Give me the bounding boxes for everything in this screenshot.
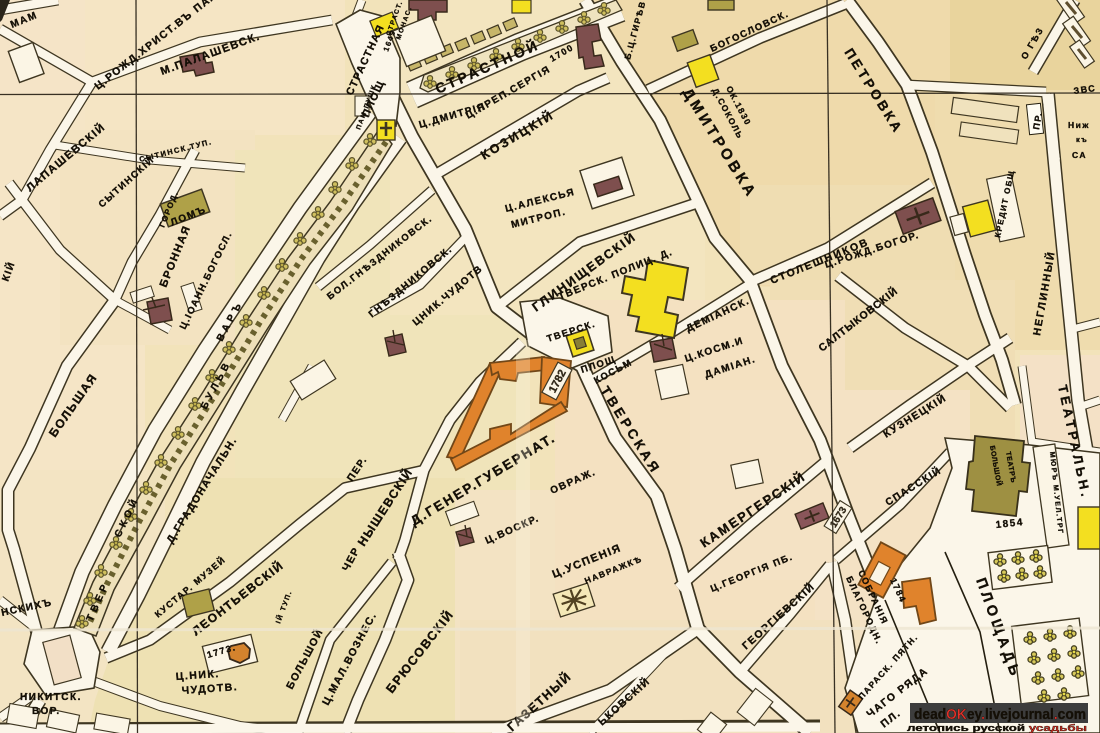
svg-text:къ: къ	[1076, 135, 1088, 144]
svg-text:СА: СА	[1072, 150, 1087, 160]
svg-text:ВОР.: ВОР.	[32, 706, 61, 717]
svg-text:deadOKey.livejournal.com: deadOKey.livejournal.com	[914, 706, 1086, 723]
svg-text:НИКИТСК.: НИКИТСК.	[20, 692, 82, 703]
svg-text:летопись русской усадьбы: летопись русской усадьбы	[907, 723, 1087, 733]
svg-text:Ниж: Ниж	[1068, 120, 1090, 130]
